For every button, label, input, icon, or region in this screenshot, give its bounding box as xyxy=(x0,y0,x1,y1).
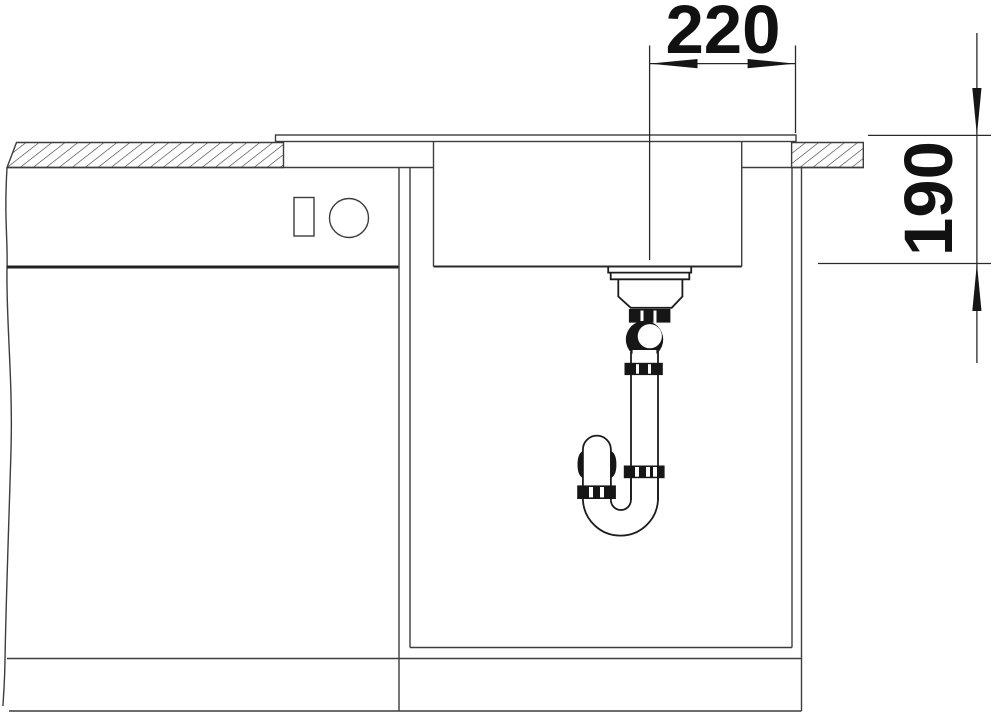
svg-text:190: 190 xyxy=(890,141,967,256)
svg-text:220: 220 xyxy=(665,0,780,68)
